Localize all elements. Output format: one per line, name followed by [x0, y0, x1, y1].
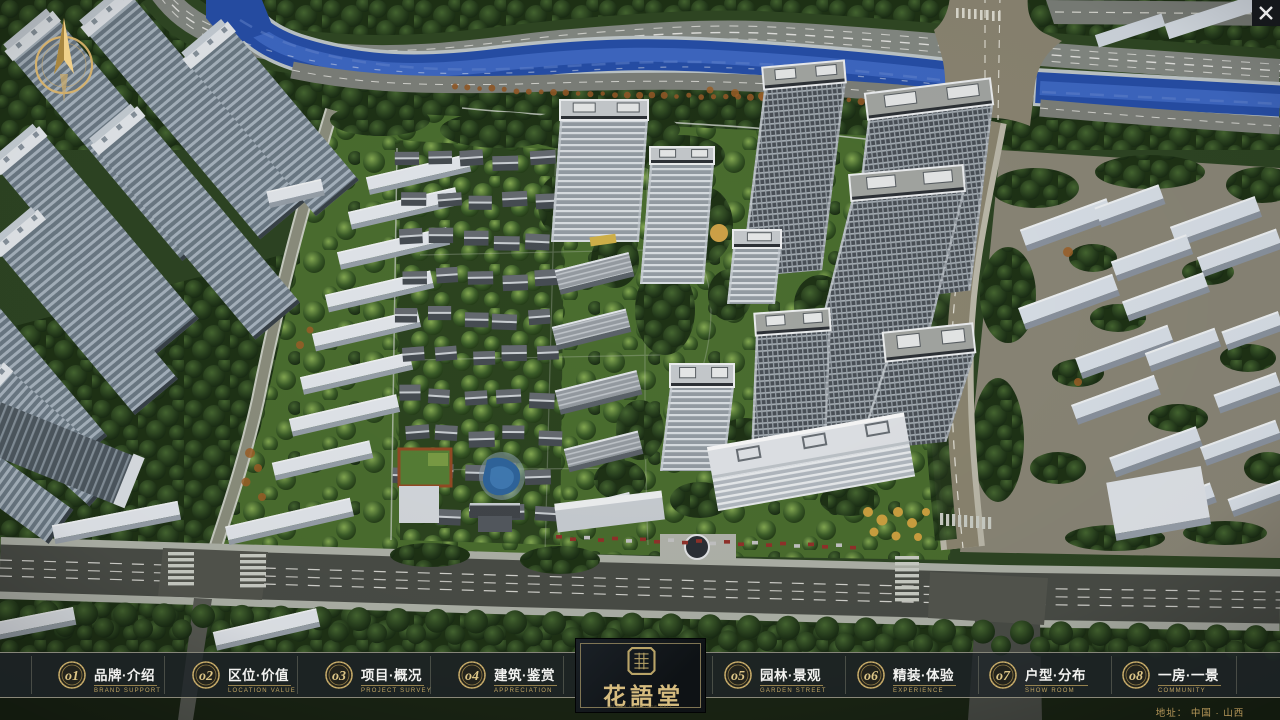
svg-text:o7: o7: [996, 669, 1011, 684]
svg-text:o3: o3: [332, 669, 346, 684]
svg-text:o2: o2: [199, 669, 213, 684]
svg-text:o5: o5: [731, 669, 745, 684]
svg-text:o6: o6: [864, 669, 878, 684]
svg-text:o1: o1: [65, 669, 79, 684]
svg-text:o4: o4: [465, 669, 479, 684]
svg-text:o8: o8: [1129, 669, 1143, 684]
